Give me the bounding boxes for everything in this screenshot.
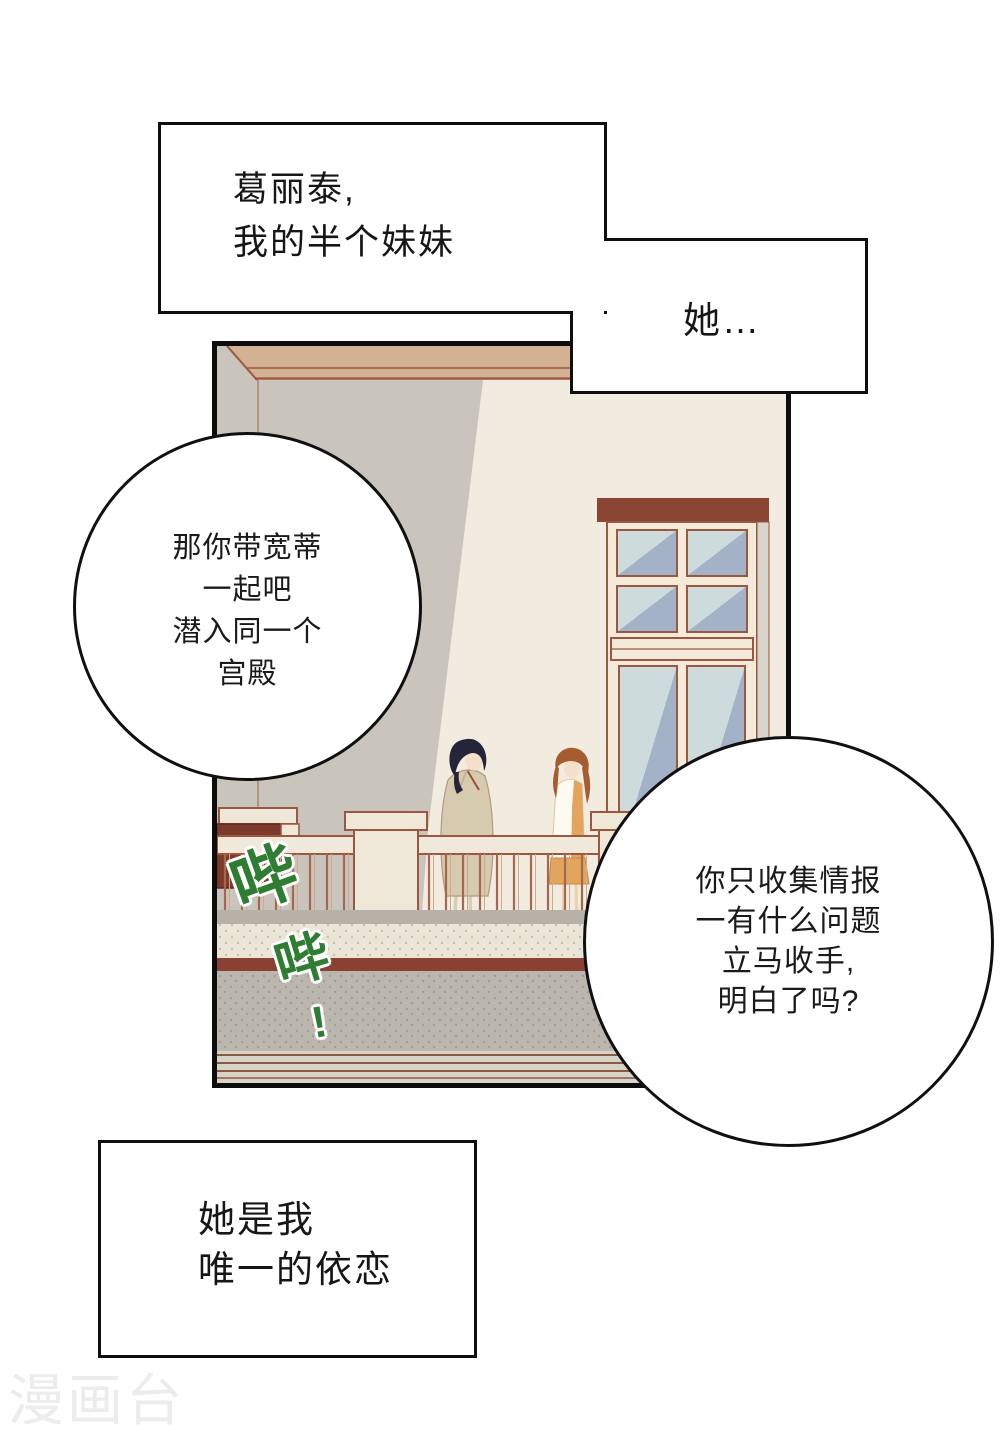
speech-bubble-left: 那你带宽蒂 一起吧 潜入同一个 宫殿: [73, 432, 422, 781]
caption-line: 我的半个妹妹: [233, 216, 455, 269]
bubble-line: 立马收手,: [696, 942, 882, 982]
bubble-line: 宫殿: [172, 653, 322, 695]
speech-bubble-right: 你只收集情报 一有什么问题 立马收手, 明白了吗?: [583, 736, 994, 1147]
box-border-merge-patch: [602, 241, 611, 311]
bubble-line: 潜入同一个: [172, 611, 322, 653]
bubble-line: 那你带宽蒂: [172, 527, 322, 569]
caption-line: 唯一的依恋: [198, 1245, 393, 1295]
caption-she-text: 她…: [683, 293, 761, 349]
caption-box-top: 葛丽泰, 我的半个妹妹: [158, 122, 607, 314]
caption-bottom-text: 她是我 唯一的依恋: [198, 1195, 393, 1294]
speech-bubble-right-text: 你只收集情报 一有什么问题 立马收手, 明白了吗?: [696, 862, 882, 1022]
bubble-line: 明白了吗?: [696, 982, 882, 1022]
caption-box-she: 她…: [570, 238, 868, 394]
caption-box-bottom: 她是我 唯一的依恋: [98, 1140, 477, 1358]
bubble-line: 一起吧: [172, 569, 322, 611]
comic-page: 哔 哔 ! 她… 葛丽泰, 我的半个妹妹 那你带宽蒂 一起吧 潜入同一个 宫殿 …: [0, 0, 1000, 1429]
caption-top-text: 葛丽泰, 我的半个妹妹: [233, 163, 455, 269]
box-border-merge-patch: [573, 310, 604, 318]
speech-bubble-left-text: 那你带宽蒂 一起吧 潜入同一个 宫殿: [172, 519, 322, 695]
bubble-line: 一有什么问题: [696, 902, 882, 942]
watermark: 漫画台: [8, 1356, 185, 1429]
caption-line: 她是我: [198, 1195, 393, 1245]
caption-line: 葛丽泰,: [233, 163, 455, 216]
bubble-line: 你只收集情报: [696, 862, 882, 902]
